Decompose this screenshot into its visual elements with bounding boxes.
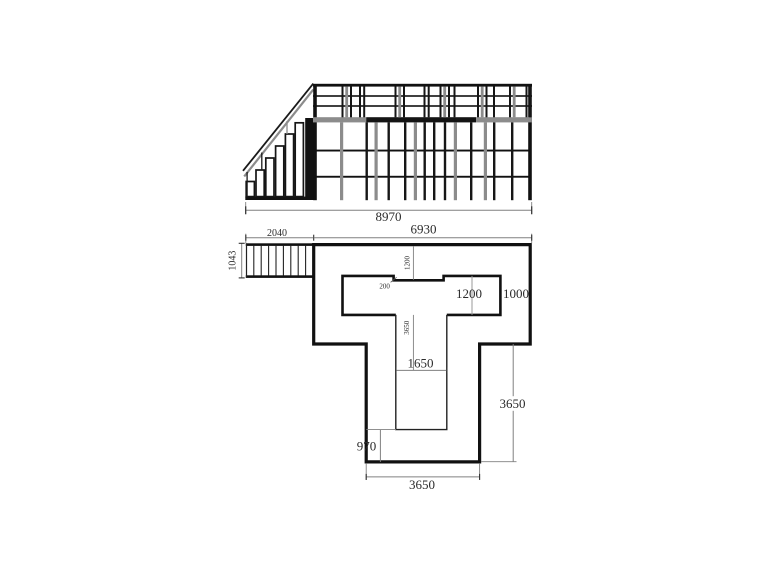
dim-stair-depth: 1043 <box>228 243 245 278</box>
scaffold-standard <box>470 122 472 200</box>
stair-plan-top-edge <box>246 243 314 246</box>
cad-drawing: 8970 2040 6930 <box>0 0 760 570</box>
guardrail-post <box>428 87 430 118</box>
scaffold-standard <box>375 122 378 200</box>
guardrail-post <box>359 87 361 118</box>
dim-right-depth: 3650 <box>481 344 526 462</box>
ledger <box>313 150 532 152</box>
stair-step <box>256 170 264 197</box>
scaffold-standard <box>388 122 390 200</box>
dim-stair-width: 2040 <box>246 228 314 243</box>
scaffold-standard <box>366 122 368 200</box>
guardrail-post <box>363 87 365 118</box>
plan-view: 2040 6930 1043 1200 200 120 <box>228 222 532 492</box>
guardrail-post <box>454 87 456 118</box>
stair-step <box>295 123 303 197</box>
guardrail-post <box>481 87 484 118</box>
guardrail-post <box>443 87 446 118</box>
guardrail-post <box>477 87 479 118</box>
scaffold-standard <box>414 122 417 200</box>
guardrail-post <box>493 87 495 118</box>
dim-label-1043: 1043 <box>228 251 239 271</box>
dim-label-3650-right: 3650 <box>500 396 526 411</box>
scaffold-standard <box>424 122 426 200</box>
dim-label-1000: 1000 <box>503 286 529 301</box>
scaffold-standard <box>493 122 495 200</box>
guardrail-post <box>448 87 450 118</box>
guardrail-post <box>486 87 488 118</box>
scaffold-standard <box>484 122 487 200</box>
guardrail-post <box>513 87 516 118</box>
dim-label-1200: 1200 <box>456 286 482 301</box>
deck-board-center <box>366 117 476 122</box>
guardrail-post <box>526 87 528 118</box>
scaffold-standard <box>340 122 343 200</box>
scaffold-standard <box>404 122 406 200</box>
top-guardrail <box>313 84 532 87</box>
guardrail-post <box>440 87 442 118</box>
dim-total-width: 8970 <box>246 202 532 224</box>
guardrail-post <box>345 87 348 118</box>
deck-board-left <box>313 117 366 122</box>
guardrail-post <box>509 87 511 118</box>
guardrail-post <box>398 87 401 118</box>
stair-plan-bottom-edge <box>246 275 314 278</box>
elevation-view: 8970 <box>243 84 532 224</box>
guardrail-posts <box>342 87 532 118</box>
guardrail-post <box>424 87 426 118</box>
guardrail-post <box>395 87 397 118</box>
guardrail-post <box>403 87 405 118</box>
dim-label-1650: 1650 <box>408 356 434 371</box>
ledger <box>313 176 532 178</box>
guardrail-post <box>350 87 352 118</box>
dim-bottom-clearance: 970 <box>357 430 396 462</box>
deck-board-right <box>476 117 532 122</box>
dim-label-2040: 2040 <box>267 228 287 239</box>
dim-label-970: 970 <box>357 438 377 453</box>
scaffold-standard <box>433 122 435 200</box>
dim-stem-width: 3650 <box>366 464 479 492</box>
stair-step <box>276 146 284 197</box>
stair-step <box>285 134 293 197</box>
scaffold-standard <box>511 122 513 200</box>
dim-opening-top-offset: 1200 <box>404 246 414 280</box>
dim-label-200: 200 <box>379 282 390 290</box>
scaffold-standard <box>444 122 446 200</box>
dim-label-3650-bottom: 3650 <box>409 477 435 492</box>
dim-label-8970: 8970 <box>376 209 402 224</box>
dim-label-1200-offset: 1200 <box>404 256 412 271</box>
dim-label-6930: 6930 <box>411 222 437 237</box>
stair-steps <box>246 123 303 197</box>
stair-step <box>266 158 274 197</box>
stair-plan <box>246 243 314 278</box>
guardrail-post <box>342 87 344 118</box>
guardrail-post <box>529 87 531 118</box>
dim-label-3650-small: 3650 <box>403 320 411 335</box>
dim-opening-height: 1200 <box>456 276 482 315</box>
dim-notch: 200 <box>379 277 396 290</box>
dim-stem-opening-width: 1650 <box>396 356 447 374</box>
scaffold-standards <box>340 122 513 200</box>
drawing-sheet: 8970 2040 6930 <box>0 0 760 570</box>
left-column <box>313 84 317 200</box>
stair-treads <box>254 246 306 276</box>
scaffold-standard <box>454 122 457 200</box>
dim-platform-width: 6930 <box>314 222 532 244</box>
